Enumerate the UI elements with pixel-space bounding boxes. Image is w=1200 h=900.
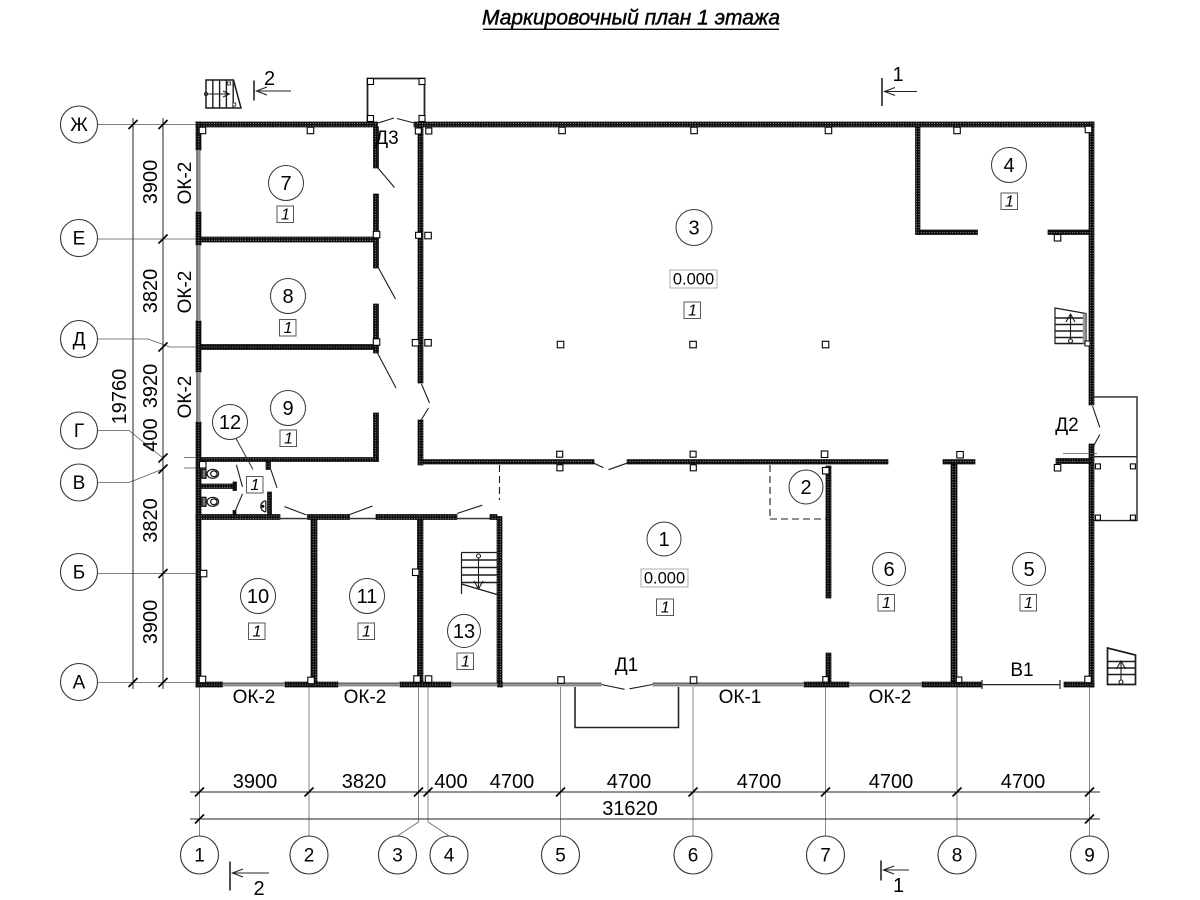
svg-text:2: 2: [253, 878, 264, 900]
svg-text:8: 8: [282, 286, 293, 308]
svg-text:3820: 3820: [140, 269, 162, 314]
svg-text:1: 1: [658, 529, 669, 551]
svg-text:А: А: [73, 673, 86, 694]
svg-text:4700: 4700: [607, 771, 652, 793]
svg-text:ОК-2: ОК-2: [869, 687, 912, 708]
svg-text:ОК-1: ОК-1: [719, 687, 762, 708]
svg-text:9: 9: [1084, 846, 1095, 867]
svg-text:6: 6: [883, 559, 894, 581]
svg-text:6: 6: [688, 846, 699, 867]
svg-text:Г: Г: [74, 421, 84, 442]
svg-text:Ж: Ж: [70, 115, 88, 136]
svg-text:10: 10: [247, 586, 269, 608]
svg-text:4: 4: [1003, 155, 1014, 177]
svg-text:1: 1: [893, 875, 904, 897]
svg-text:19760: 19760: [109, 369, 131, 425]
svg-text:1: 1: [1024, 595, 1033, 612]
svg-text:7: 7: [280, 173, 291, 195]
svg-text:1: 1: [281, 207, 290, 224]
svg-text:ОК-2: ОК-2: [344, 687, 387, 708]
svg-text:ОК-2: ОК-2: [175, 376, 196, 419]
svg-text:Д2: Д2: [1055, 415, 1078, 436]
svg-text:1: 1: [688, 303, 697, 320]
svg-text:3820: 3820: [140, 498, 162, 543]
svg-text:0.000: 0.000: [644, 570, 685, 588]
svg-text:Е: Е: [73, 229, 86, 250]
svg-text:9: 9: [282, 398, 293, 420]
svg-text:4700: 4700: [869, 771, 914, 793]
svg-text:1: 1: [194, 846, 205, 867]
svg-text:3900: 3900: [140, 160, 162, 205]
svg-text:400: 400: [140, 418, 162, 451]
svg-text:0.000: 0.000: [673, 271, 714, 289]
svg-text:8: 8: [952, 846, 963, 867]
svg-text:4: 4: [444, 846, 455, 867]
svg-text:1: 1: [284, 320, 293, 337]
svg-text:Д: Д: [73, 330, 86, 351]
svg-text:1: 1: [251, 477, 260, 494]
svg-text:1: 1: [882, 595, 891, 612]
svg-text:12: 12: [219, 412, 241, 434]
svg-text:3: 3: [392, 846, 403, 867]
svg-text:4700: 4700: [490, 771, 535, 793]
svg-text:Маркировочный план 1 этажа: Маркировочный план 1 этажа: [482, 7, 780, 30]
svg-text:1: 1: [362, 624, 371, 641]
svg-text:13: 13: [453, 621, 475, 643]
svg-text:400: 400: [434, 771, 467, 793]
svg-text:Д1: Д1: [615, 655, 638, 676]
svg-text:31620: 31620: [602, 798, 658, 820]
svg-text:3920: 3920: [140, 364, 162, 409]
svg-text:4700: 4700: [737, 771, 782, 793]
svg-text:1: 1: [284, 431, 293, 448]
svg-text:4700: 4700: [1001, 771, 1046, 793]
svg-text:ОК-2: ОК-2: [175, 271, 196, 314]
svg-text:Б: Б: [73, 563, 85, 584]
svg-text:1: 1: [253, 624, 262, 641]
svg-text:В: В: [73, 473, 86, 494]
svg-text:2: 2: [304, 846, 315, 867]
svg-text:2: 2: [264, 68, 275, 90]
svg-text:5: 5: [555, 846, 566, 867]
svg-text:3: 3: [688, 218, 699, 240]
svg-text:1: 1: [461, 654, 470, 671]
svg-text:ОК-2: ОК-2: [233, 687, 276, 708]
svg-text:1: 1: [892, 64, 903, 86]
svg-text:ОК-2: ОК-2: [175, 162, 196, 205]
svg-text:В1: В1: [1010, 660, 1033, 681]
svg-text:7: 7: [820, 846, 831, 867]
svg-text:3820: 3820: [342, 771, 387, 793]
svg-text:3900: 3900: [140, 600, 162, 645]
svg-text:Д3: Д3: [375, 128, 398, 149]
svg-text:5: 5: [1023, 559, 1034, 581]
svg-text:1: 1: [1005, 194, 1014, 211]
svg-text:2: 2: [800, 477, 811, 499]
svg-text:11: 11: [357, 586, 378, 608]
svg-text:1: 1: [661, 600, 670, 617]
svg-text:3900: 3900: [233, 771, 278, 793]
